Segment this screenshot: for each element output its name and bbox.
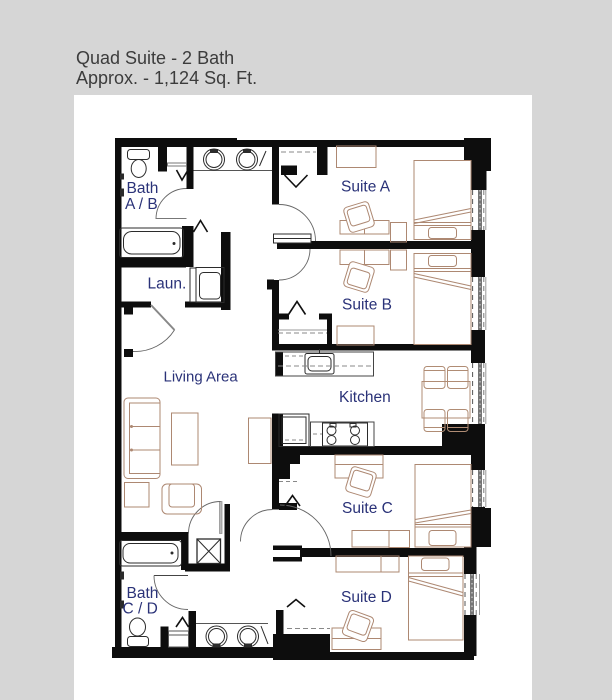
svg-text:Living Area: Living Area — [164, 369, 239, 386]
svg-text:Suite A: Suite A — [341, 179, 391, 196]
svg-text:Bath: Bath — [127, 585, 159, 602]
svg-text:Kitchen: Kitchen — [339, 389, 391, 406]
svg-text:C / D: C / D — [123, 601, 158, 618]
svg-text:A / B: A / B — [125, 196, 158, 213]
svg-text:Bath: Bath — [127, 180, 159, 197]
svg-text:Laun.: Laun. — [148, 276, 187, 293]
svg-text:Approx. - 1,124 Sq. Ft.: Approx. - 1,124 Sq. Ft. — [76, 68, 257, 88]
svg-text:Suite C: Suite C — [342, 500, 393, 517]
svg-text:Suite D: Suite D — [341, 589, 392, 606]
svg-text:Suite B: Suite B — [342, 297, 392, 314]
svg-text:Quad Suite - 2 Bath: Quad Suite - 2 Bath — [76, 48, 234, 68]
